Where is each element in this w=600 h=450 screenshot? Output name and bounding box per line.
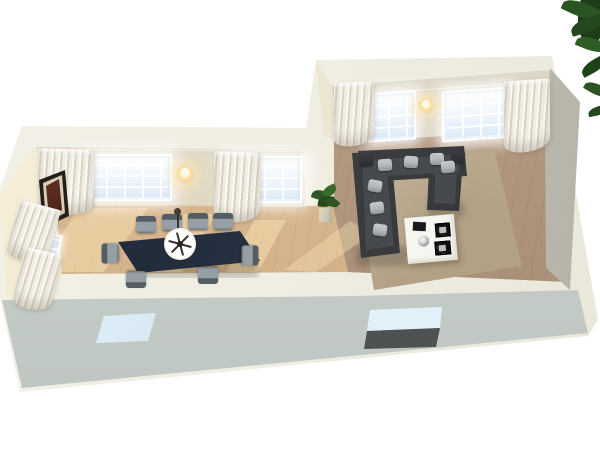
foliage-leaf [587, 104, 600, 117]
living-window-1 [368, 90, 416, 142]
black-book [413, 222, 426, 232]
foliage-leaf [583, 78, 600, 101]
dining-chair [188, 213, 208, 230]
throw-pillow [358, 153, 373, 166]
chandelier-stem [177, 213, 179, 229]
coffee-table [404, 214, 458, 264]
dining-chair [126, 271, 146, 288]
dining-chair [102, 244, 119, 264]
throw-pillow [367, 179, 383, 193]
dining-window-1 [86, 154, 172, 201]
foreground-plant [556, 0, 600, 132]
dining-chair [213, 213, 233, 230]
plant-pot [319, 208, 332, 222]
wall-sconce-light [418, 98, 434, 114]
chandelier-hub [177, 241, 183, 247]
throw-pillow [372, 223, 388, 237]
curtain [504, 78, 550, 153]
throw-pillow [441, 160, 456, 173]
throw-pillow [404, 156, 419, 169]
living-window-2 [442, 87, 512, 143]
metal-bowl [418, 235, 430, 247]
dining-chair [242, 246, 259, 266]
wall-sconce-light [176, 166, 194, 184]
floorplan-render [0, 0, 600, 450]
dining-chair [198, 267, 218, 284]
chandelier [164, 228, 196, 260]
framed-print [434, 240, 451, 255]
dining-chair [136, 216, 156, 233]
chandelier-knob [174, 208, 181, 215]
curtain [334, 81, 374, 148]
foliage-leaf [579, 54, 600, 78]
throw-pillow [378, 159, 393, 172]
throw-pillow [369, 201, 384, 215]
framed-print [435, 222, 451, 237]
